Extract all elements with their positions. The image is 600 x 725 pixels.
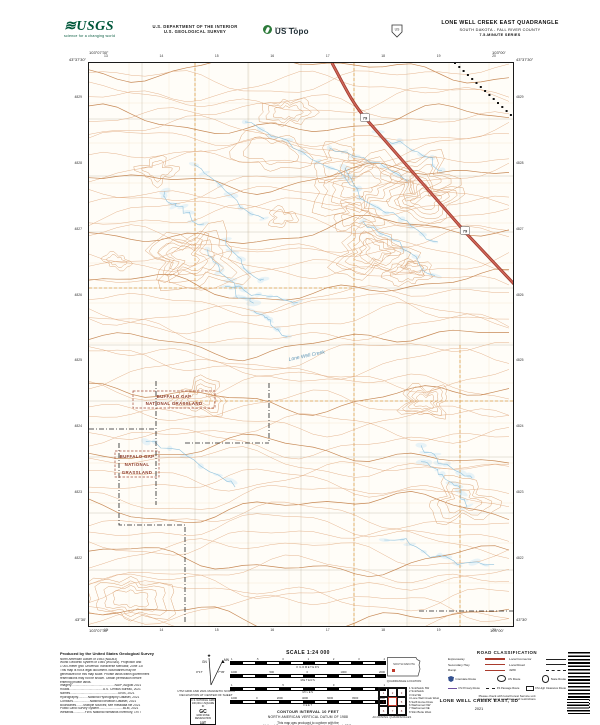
quad-subtitle: SOUTH DAKOTA - FALL RIVER COUNTY	[420, 28, 580, 32]
grid-tick-label: 13	[104, 54, 108, 58]
vertical-datum-note: NORTH AMERICAN VERTICAL DATUM OF 1988	[230, 715, 386, 719]
railroad-dot	[501, 106, 503, 108]
ustopo-brand-label: US Topo	[275, 30, 309, 34]
credit-line: entering private lands.	[60, 681, 190, 685]
credit-line: 1 000-meter grid: Universal Transverse M…	[60, 665, 190, 669]
credit-line: Contours...................National Elev…	[60, 700, 190, 704]
usng-box: U.S. NATIONAL GRID 100,000-m SQUARE ID G…	[190, 698, 216, 725]
scale-title: SCALE 1:24 000	[230, 650, 386, 656]
grid-tick-label: 4829	[74, 95, 82, 99]
sheet-title-block: LONE WELL CREEK EAST, SD 2021	[420, 699, 538, 711]
svg-text:GN: GN	[202, 660, 207, 664]
grid-tick-label: 4825	[74, 358, 82, 362]
scale-bars: 1.501234KILOMETERS1000500010002000METERS…	[230, 658, 386, 707]
fs-passage-route-sample	[486, 688, 495, 689]
grassland-label-text: NATIONAL	[125, 462, 150, 467]
scale-bar-unit: METERS	[230, 679, 386, 682]
credits-lines: North American Datum of 1983 (NAD83)Worl…	[60, 658, 190, 716]
left-grid-ticks: 48294828482748264825482448234822	[66, 95, 82, 560]
usgs-logo-tagline: science for a changing world	[64, 34, 142, 38]
legend-row: Ramp 4WD	[448, 668, 566, 672]
grid-tick-label: 17	[326, 628, 330, 632]
declination-diagram: ★ GN MN 0°17' 7°45'	[188, 651, 236, 689]
forest-service-routes-row: FS Primary Route FS Passage Route FS Hig…	[448, 686, 566, 692]
grid-tick-label: 16	[270, 628, 274, 632]
expressway-line-sample	[485, 658, 505, 660]
usgs-topo-sheet: ≋USGS science for a changing world U.S. …	[0, 0, 600, 725]
svg-text:MN: MN	[224, 658, 230, 662]
adjoining-grid-cell: 8	[397, 706, 406, 715]
railroad-dot	[458, 66, 460, 68]
quad-series: 7.5-MINUTE SERIES	[420, 33, 580, 37]
grid-tick-label: 14	[159, 628, 163, 632]
adjoining-quad-name: 8 Slim Butte West	[409, 711, 453, 714]
local-connector-line-sample	[546, 659, 566, 660]
credit-line: Boundaries........Multiple sources; see …	[60, 704, 190, 708]
adjoining-quads-grid: 12345678	[378, 687, 407, 716]
svg-text:US: US	[395, 28, 400, 32]
grid-tick-label: 4827	[516, 227, 532, 231]
railroad-dot	[471, 78, 473, 80]
adjoining-grid-cell: 1	[379, 688, 388, 697]
railroad-dot	[454, 63, 456, 64]
usgs-logo: ≋USGS science for a changing world	[64, 20, 142, 38]
credits-title: Produced by the United States Geological…	[60, 651, 190, 656]
usng-zone: 13T	[191, 721, 215, 725]
svg-text:★: ★	[207, 653, 212, 658]
grid-tick-label: 15	[215, 628, 219, 632]
ustopo-globe-icon	[263, 25, 272, 34]
grid-tick-label: 4822	[516, 556, 532, 560]
grid-tick-label: 19	[437, 628, 441, 632]
department-heading: U.S. DEPARTMENT OF THE INTERIOR U.S. GEO…	[140, 24, 250, 35]
grid-tick-label: 4822	[74, 556, 82, 560]
adjoining-grid-cell: 5	[397, 697, 406, 706]
grassland-label-text: NATIONAL GRASSLAND	[146, 401, 203, 406]
railroad-dot	[488, 94, 490, 96]
forest-service-shield-icon: US	[391, 24, 403, 38]
scale-bar-unit: KILOMETERS	[230, 666, 386, 669]
grid-tick-label: 13	[104, 628, 108, 632]
ustopo-logo: The National Map US Topo	[263, 25, 323, 34]
fs-high-clearance-sample	[526, 686, 534, 692]
grid-tick-label: 4826	[516, 293, 532, 297]
credit-line: Imagery.................................…	[60, 684, 190, 688]
right-grid-ticks: 48294828482748264825482448234822	[516, 95, 532, 560]
road-classification-title: ROAD CLASSIFICATION	[448, 650, 566, 655]
sheet-year: 2021	[420, 707, 538, 711]
railroad-dot	[467, 74, 469, 76]
scale-block: SCALE 1:24 000 1.501234KILOMETERS1000500…	[230, 650, 386, 725]
adjoining-quad-name: 3 Oral SE	[409, 694, 453, 697]
scale-bar-unit: FEET	[230, 704, 386, 707]
scale-bar-line	[230, 661, 386, 665]
interstate-shield-icon	[448, 676, 454, 682]
credit-line: generalized for this map scale. Private …	[60, 673, 190, 677]
corner-lat-top-right: 43°37'30"	[516, 57, 533, 62]
quad-title: LONE WELL CREEK EAST QUADRANGLE	[420, 20, 580, 26]
quad-location-marker	[392, 669, 395, 672]
road-classification-legend: ROAD CLASSIFICATION Expressway Local Con…	[448, 650, 566, 702]
grid-tick-label: 20	[492, 628, 496, 632]
grid-tick-label: 17	[326, 54, 330, 58]
sheet-name: LONE WELL CREEK EAST, SD	[420, 699, 538, 704]
ramp-line-sample	[485, 670, 505, 671]
corner-lat-top-left: 43°37'30"	[52, 57, 86, 62]
quad-title-block: LONE WELL CREEK EAST QUADRANGLE SOUTH DA…	[420, 20, 580, 37]
credit-line: Public Land Survey System...............…	[60, 707, 190, 711]
grid-tick-label: 15	[215, 54, 219, 58]
4wd-line-sample	[546, 670, 566, 671]
grassland-label-text: BUFFALO GAP	[120, 454, 155, 459]
usgs-logo-wordmark: ≋USGS	[64, 20, 142, 33]
svg-text:SOUTH DAKOTA: SOUTH DAKOTA	[393, 662, 415, 666]
adjoining-quad-name: 2 Smithwick	[409, 690, 453, 693]
scale-bar: 10000200040006000800010000FEET	[230, 697, 386, 708]
adjoining-grid-cell: 7	[388, 706, 397, 715]
product-standard-note: This map was produced to conform with th…	[230, 722, 386, 725]
grid-tick-label: 4828	[74, 161, 82, 165]
secondary-hwy-line-sample	[485, 664, 505, 665]
grid-tick-label: 18	[381, 628, 385, 632]
adjoining-grid-cell: 6	[379, 706, 388, 715]
grid-tick-label: 4825	[516, 358, 532, 362]
credit-line: World Geodetic System of 1984 (WGS84). P…	[60, 661, 190, 665]
grassland-label-text: BUFFALO GAP	[157, 394, 192, 399]
grid-tick-label: 4827	[74, 227, 82, 231]
corner-lat-bottom-left: 43°30'	[52, 617, 86, 622]
contour-interval-note: CONTOUR INTERVAL 10 FEET	[230, 710, 386, 714]
svg-text:0°17': 0°17'	[196, 670, 203, 674]
state-route-circle-icon	[542, 675, 550, 683]
grid-tick-label: 18	[381, 54, 385, 58]
railroad-dot	[480, 86, 482, 88]
quadrangle-location-caption: QUADRANGLE LOCATION	[378, 679, 430, 683]
grid-tick-label: 19	[437, 54, 441, 58]
production-credits: Produced by the United States Geological…	[60, 651, 190, 715]
scale-bar: 1.501MILES	[230, 684, 386, 695]
adjoining-grid-cell: 3	[397, 688, 406, 697]
map-neatline: BUFFALO GAPNATIONAL GRASSLANDBUFFALO GAP…	[88, 62, 514, 627]
scale-bar-line	[230, 674, 386, 678]
legend-row: Expressway Local Connector	[448, 657, 566, 661]
grid-tick-label: 4823	[74, 490, 82, 494]
dept-line-2: U.S. GEOLOGICAL SURVEY	[140, 29, 250, 34]
corner-lat-bottom-right: 43°30'	[516, 617, 527, 622]
svg-text:7°45': 7°45'	[218, 670, 225, 674]
grid-tick-label: 4826	[74, 293, 82, 297]
grid-tick-label: 14	[159, 54, 163, 58]
railroad-dot	[476, 82, 478, 84]
legend-row: Secondary Hwy Local Road	[448, 663, 566, 667]
route-shield-number: 79	[463, 229, 468, 234]
adjoining-grid-cell: 2	[388, 688, 397, 697]
scale-bar-line	[230, 700, 386, 704]
grid-tick-label: 4824	[516, 424, 532, 428]
scale-bar: 1.501234KILOMETERS	[230, 658, 386, 669]
grassland-label-text: GRASSLAND	[122, 470, 153, 475]
railroad-dot	[463, 70, 465, 72]
fs-primary-route-sample	[448, 688, 457, 689]
barcode-lower	[567, 699, 589, 713]
adjoining-quad-name: 1 Smithwick SW	[409, 687, 453, 690]
adjoining-grid-cell: 4	[379, 697, 388, 706]
grid-tick-label: 4828	[516, 161, 532, 165]
credit-line: This map is not a legal document. Bounda…	[60, 669, 190, 673]
state-locator-map: SOUTH DAKOTA	[386, 656, 422, 678]
credit-line: reservations may not be shown. Obtain pe…	[60, 677, 190, 681]
grid-tick-label: 4824	[74, 424, 82, 428]
adjoining-grid-cell	[388, 697, 397, 706]
credit-line: North American Datum of 1983 (NAD83)	[60, 658, 190, 662]
grid-tick-label: 20	[492, 54, 496, 58]
railroad-dot	[497, 102, 499, 104]
grid-tick-label: 4823	[516, 490, 532, 494]
railroad-dot	[493, 98, 495, 100]
us-route-oval-icon	[497, 675, 506, 682]
grid-tick-label: 4829	[516, 95, 532, 99]
route-shield-number: 79	[363, 116, 368, 121]
railroad-dot	[506, 110, 508, 112]
railroad-dot	[484, 90, 486, 92]
credit-line: Wetlands.............FWS National Wetlan…	[60, 711, 190, 715]
adjoining-quads-caption: ADJOINING QUADRANGLES	[366, 716, 418, 719]
railroad-dot	[510, 114, 512, 116]
scale-bar: 1000500010002000METERS	[230, 671, 386, 682]
topo-map-image: BUFFALO GAPNATIONAL GRASSLANDBUFFALO GAP…	[89, 63, 513, 626]
top-grid-ticks: 1314151617181920	[104, 54, 496, 58]
bottom-grid-ticks: 1314151617181920	[104, 628, 496, 632]
scale-bar-unit: MILES	[230, 691, 386, 694]
grid-tick-label: 16	[270, 54, 274, 58]
route-shields-row: Interstate Route US Route State Route	[448, 675, 566, 683]
local-road-line-sample	[546, 664, 566, 665]
